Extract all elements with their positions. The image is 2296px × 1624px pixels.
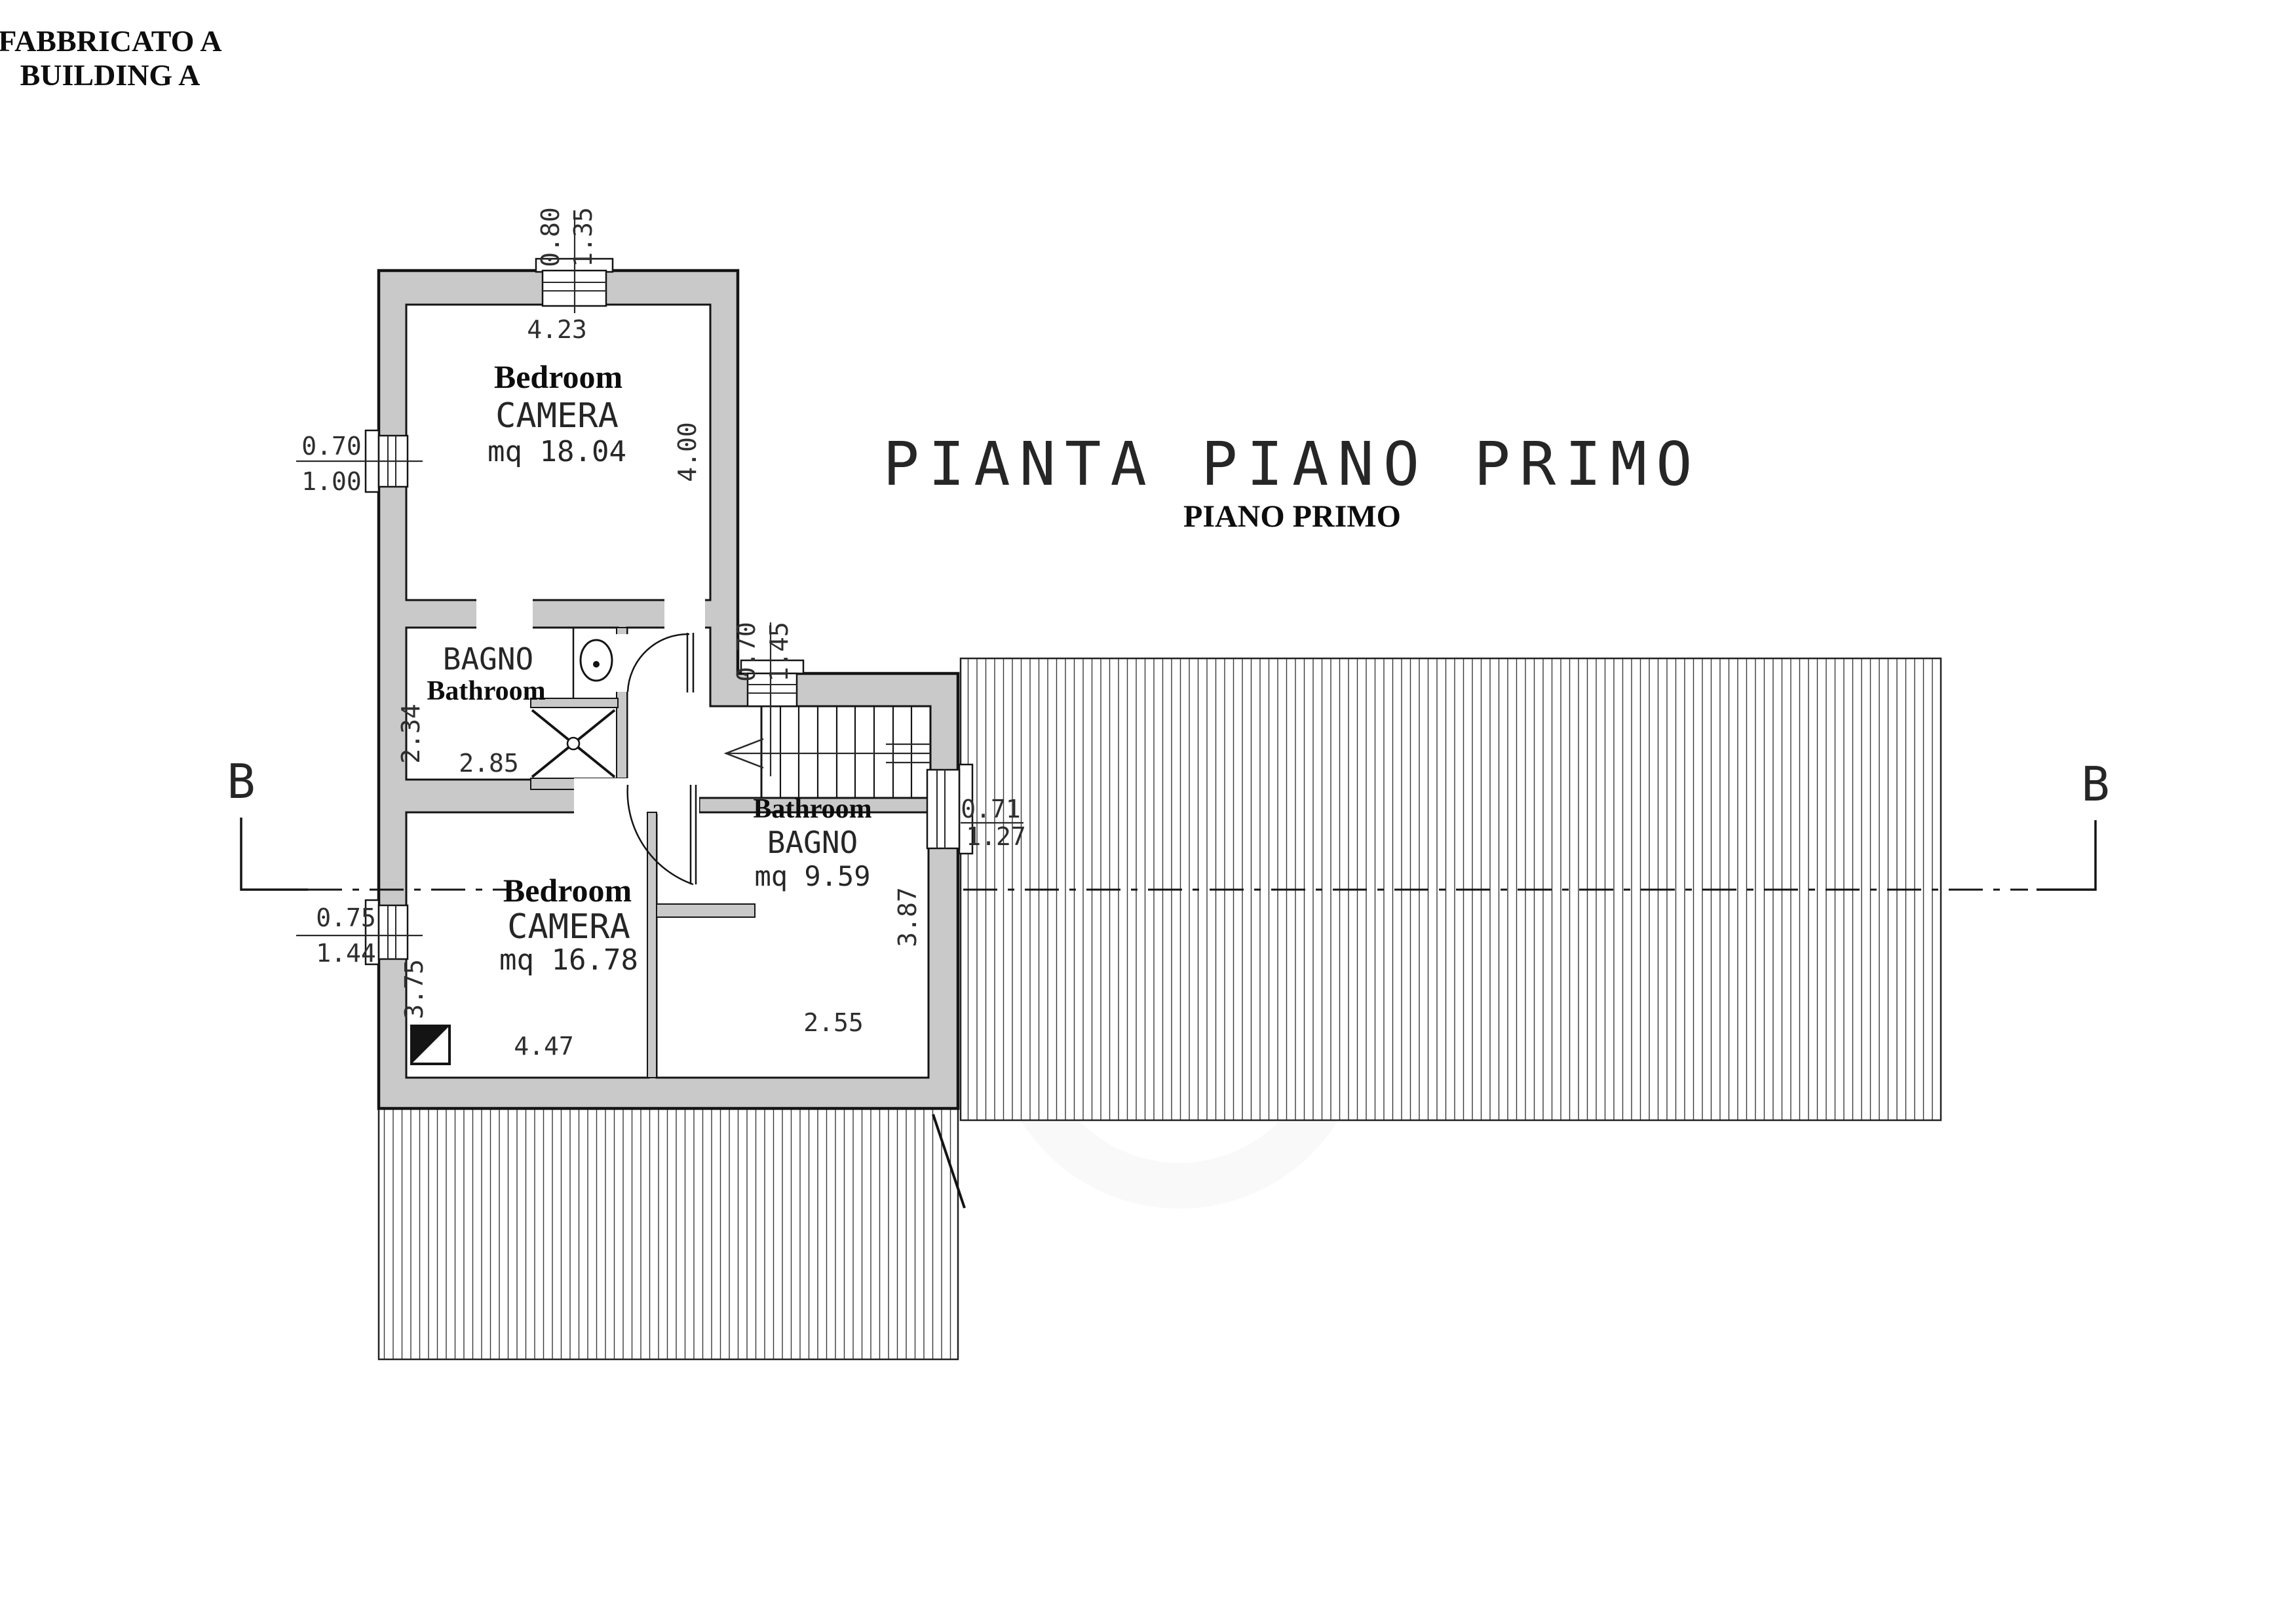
dim-win-ll-w: 0.75 [316, 903, 376, 932]
page-title: PIANTA PIANO PRIMO [883, 429, 1702, 499]
dim-bath1-w: 2.85 [459, 749, 519, 778]
dim-bath2-h: 3.87 [893, 887, 922, 947]
dim-win-ul-h: 1.00 [301, 467, 362, 496]
title-block: PIANTA PIANO PRIMO PIANO PRIMO [883, 429, 1702, 534]
header: FABBRICATO A BUILDING A [0, 24, 222, 92]
dim-win-ll-h: 1.44 [316, 939, 376, 968]
bedroom-upper-area: mq 18.04 [488, 435, 626, 468]
bathroom-lower-it: BAGNO [767, 825, 858, 860]
dim-bath2-window-h: 1.27 [966, 822, 1026, 851]
dim-bath1-h: 2.34 [396, 704, 425, 764]
dim-room1-h: 4.00 [673, 422, 702, 482]
bedroom-upper-it: CAMERA [495, 396, 619, 436]
header-line2: BUILDING A [20, 58, 201, 92]
bathroom-upper-en: Bathroom [427, 676, 545, 706]
bedroom-upper-en: Bedroom [494, 358, 622, 395]
section-marker-right: B [2081, 757, 2109, 812]
dim-stair-window-w: 0.70 [732, 622, 761, 682]
sink-icon [581, 640, 612, 681]
section-marker-leader-left [241, 818, 308, 890]
bedroom-lower-it: CAMERA [507, 907, 630, 947]
bathroom-upper-it: BAGNO [443, 641, 533, 677]
dim-room2-h: 3.75 [400, 959, 429, 1019]
dim-room2-w: 4.47 [514, 1032, 574, 1061]
dim-top-window-w: 0.80 [536, 207, 565, 267]
section-marker-leader-right [2037, 820, 2095, 890]
dim-win-ul-w: 0.70 [301, 432, 362, 461]
roof-lower [379, 1108, 965, 1359]
bedroom-lower-area: mq 16.78 [499, 943, 638, 977]
bathroom-lower-en: Bathroom [753, 794, 871, 824]
dim-bath2-window-w: 0.71 [961, 795, 1021, 823]
bedroom-lower-en: Bedroom [503, 872, 632, 909]
section-marker-left: B [227, 754, 255, 809]
bathroom-lower-area: mq 9.59 [754, 860, 870, 892]
floor-plan-page: { "header": { "line1": "FABBRICATO A", "… [0, 0, 2296, 1624]
stairwell [761, 706, 930, 798]
header-line1: FABBRICATO A [0, 24, 222, 58]
flue-corner-icon [411, 1026, 450, 1064]
floor-plan-drawing: B B FABBRICATO A BUILDING A PIANTA PIANO… [0, 0, 2296, 1624]
dim-top-window-h: 1.35 [569, 207, 598, 267]
dim-stair-window-h: 1.45 [765, 622, 794, 682]
page-subtitle: PIANO PRIMO [1183, 499, 1401, 534]
dim-bath2-w: 2.55 [803, 1008, 864, 1037]
dim-room1-w: 4.23 [527, 315, 587, 344]
